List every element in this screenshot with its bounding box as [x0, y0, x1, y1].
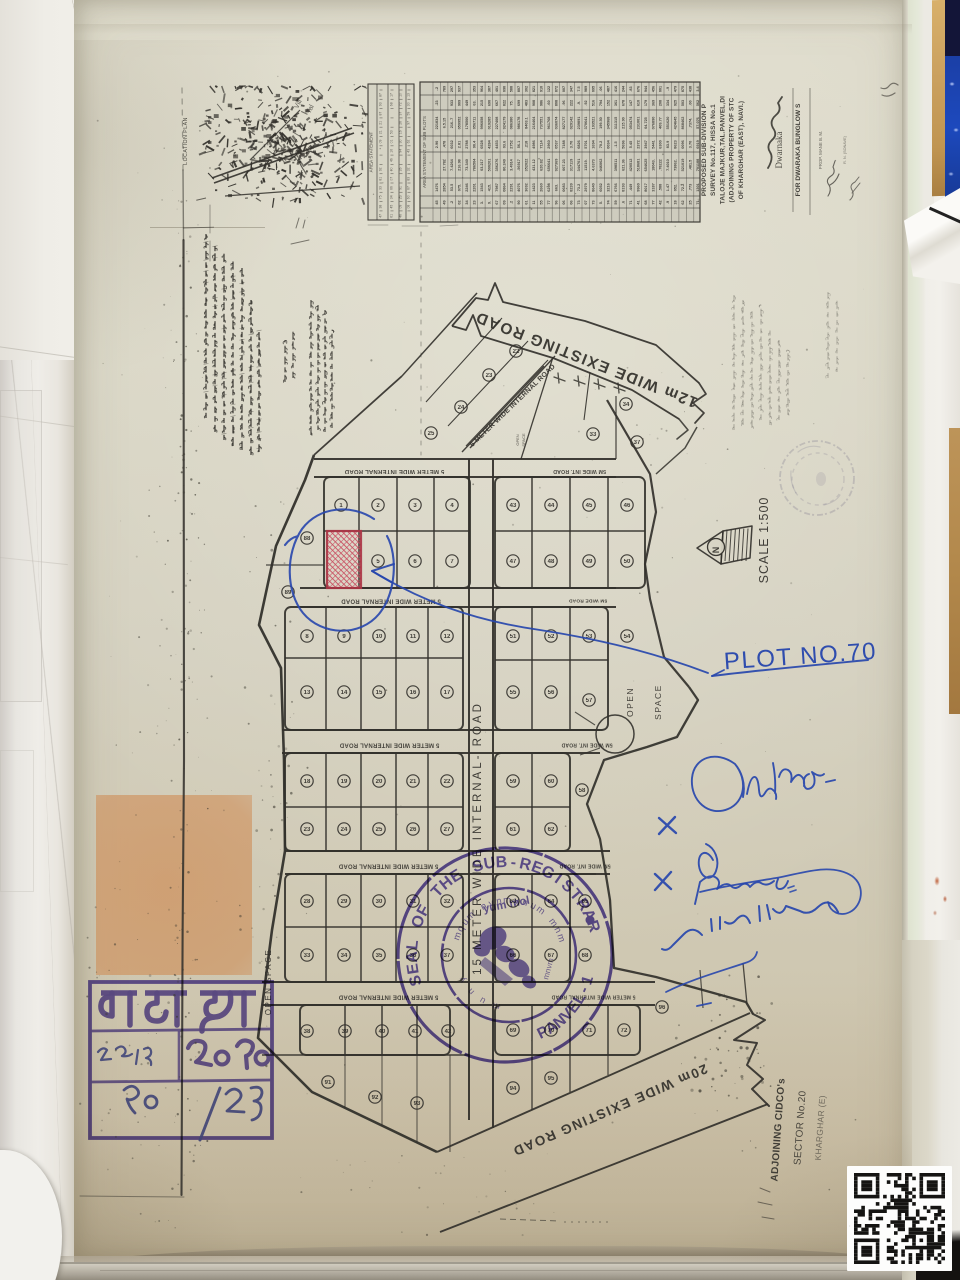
svg-text:14: 14	[341, 690, 348, 696]
svg-text:7.4264: 7.4264	[450, 158, 454, 171]
svg-text:0034: 0034	[607, 139, 611, 148]
svg-text:1: 1	[578, 973, 597, 987]
svg-text:0096: 0096	[681, 140, 685, 148]
svg-text:989: 989	[584, 86, 588, 92]
svg-text:431.12: 431.12	[532, 159, 536, 171]
svg-text:73862.: 73862.	[674, 159, 678, 171]
svg-text:2: 2	[376, 503, 380, 509]
svg-text:409.77: 409.77	[659, 117, 663, 129]
svg-text:095: 095	[592, 86, 596, 92]
svg-text:.588: .588	[659, 184, 663, 191]
svg-text:42: 42	[659, 200, 663, 204]
svg-text:15: 15	[376, 690, 383, 696]
svg-text:610: 610	[636, 100, 640, 106]
svg-text:57.076: 57.076	[696, 117, 700, 129]
svg-text:345968: 345968	[607, 117, 611, 130]
svg-text:60: 60	[548, 779, 555, 785]
svg-text:53.5: 53.5	[450, 184, 454, 191]
svg-text:95: 95	[548, 1076, 555, 1082]
svg-text:3947: 3947	[644, 140, 648, 148]
svg-text:019285: 019285	[487, 117, 491, 130]
svg-text:4: 4	[450, 503, 454, 509]
svg-text:87: 87	[379, 93, 383, 97]
svg-text:06: 06	[562, 200, 566, 204]
svg-text:7987: 7987	[495, 183, 499, 191]
svg-text:60: 60	[407, 195, 411, 199]
svg-text:13: 13	[407, 93, 411, 97]
svg-text:71: 71	[586, 1028, 593, 1034]
svg-text:2.81: 2.81	[458, 141, 462, 148]
svg-text:152: 152	[607, 100, 611, 106]
svg-text:m: m	[554, 933, 567, 944]
svg-text:69: 69	[510, 1028, 517, 1034]
svg-text:41: 41	[636, 200, 640, 204]
svg-text:13: 13	[304, 690, 311, 696]
svg-text:TALOJE MAJKUR,TAL.PANVEL,DI: TALOJE MAJKUR,TAL.PANVEL,DI	[719, 96, 726, 204]
svg-text:7.5: 7.5	[577, 86, 581, 91]
svg-text:26: 26	[410, 827, 417, 833]
svg-text:SURVEY No.117, HISSA No.1: SURVEY No.117, HISSA No.1	[710, 104, 717, 196]
svg-text:PROPOSED SUB-DIVISION P: PROPOSED SUB-DIVISION P	[701, 103, 708, 196]
svg-text:5: 5	[376, 559, 380, 565]
svg-text:2.90: 2.90	[435, 141, 439, 148]
svg-text:70.2: 70.2	[599, 141, 603, 148]
svg-text:28: 28	[304, 899, 311, 905]
svg-text:07: 07	[390, 177, 394, 181]
svg-text:398511: 398511	[614, 159, 618, 171]
svg-text:.449: .449	[629, 184, 633, 191]
svg-text:986: 986	[540, 100, 544, 106]
svg-text:SCALE 1:500: SCALE 1:500	[757, 497, 771, 584]
svg-text:SPACE: SPACE	[521, 433, 526, 447]
svg-text:87: 87	[379, 112, 383, 116]
svg-text:92: 92	[379, 167, 383, 171]
svg-text:518681: 518681	[636, 159, 640, 172]
svg-text:221834: 221834	[435, 116, 439, 130]
svg-text:438: 438	[689, 86, 693, 92]
svg-text:216464: 216464	[532, 116, 536, 130]
svg-text:46: 46	[399, 214, 403, 218]
svg-text:986178: 986178	[517, 117, 521, 130]
svg-text:7: 7	[450, 559, 454, 565]
svg-text:053474: 053474	[629, 116, 633, 130]
svg-text:7.4010: 7.4010	[666, 159, 670, 171]
svg-text:21: 21	[379, 121, 383, 125]
svg-text:23: 23	[304, 827, 311, 833]
svg-text:Dwarnaka: Dwarnaka	[774, 132, 784, 169]
svg-text:239891: 239891	[577, 117, 581, 130]
svg-text:93: 93	[379, 102, 383, 106]
svg-text:297: 297	[450, 86, 454, 92]
svg-text:875: 875	[681, 86, 685, 92]
svg-text:933: 933	[450, 100, 454, 106]
svg-text:3.70: 3.70	[569, 141, 573, 148]
svg-text:5.45: 5.45	[629, 141, 633, 148]
svg-text:KHARGHAR (E): KHARGHAR (E)	[813, 1095, 828, 1161]
svg-text:6298: 6298	[547, 183, 551, 191]
svg-text:U: U	[482, 854, 496, 873]
svg-text:33: 33	[379, 186, 383, 190]
svg-text:8640: 8640	[592, 183, 596, 191]
svg-text:.481.5: .481.5	[689, 160, 693, 171]
svg-text:3692: 3692	[525, 183, 529, 191]
svg-text:4076: 4076	[517, 183, 521, 191]
svg-text:11: 11	[532, 200, 536, 204]
svg-text:04.725: 04.725	[644, 117, 648, 129]
svg-text:81: 81	[379, 177, 383, 181]
svg-text:38: 38	[304, 1029, 311, 1035]
svg-text:16: 16	[410, 690, 417, 696]
svg-text:6: 6	[413, 559, 417, 565]
svg-text:2246: 2246	[465, 183, 469, 191]
svg-text:20: 20	[376, 779, 383, 785]
svg-text:51: 51	[510, 634, 517, 640]
svg-text:17: 17	[390, 93, 394, 97]
svg-text:10: 10	[376, 634, 383, 640]
svg-text:1: 1	[339, 503, 343, 509]
svg-text:.773: .773	[689, 184, 693, 191]
svg-text:5 METER WIDE INTERNAL ROAD: 5 METER WIDE INTERNAL ROAD	[339, 742, 439, 748]
svg-text:34: 34	[341, 953, 348, 959]
svg-text:7114: 7114	[540, 139, 544, 148]
svg-text:456: 456	[651, 86, 655, 92]
svg-text:30: 30	[407, 102, 411, 106]
svg-text:10: 10	[399, 93, 403, 97]
svg-text:5 METER WIDE INTERNAL ROAD: 5 METER WIDE INTERNAL ROAD	[338, 863, 438, 869]
svg-text:21: 21	[379, 130, 383, 134]
svg-text:5.: 5.	[599, 201, 603, 204]
svg-text:26: 26	[399, 167, 403, 171]
svg-text:352022: 352022	[525, 159, 529, 172]
svg-text:2788: 2788	[465, 140, 469, 148]
svg-text:9960: 9960	[636, 183, 640, 191]
svg-text:09: 09	[502, 200, 506, 204]
svg-text:6052: 6052	[599, 183, 603, 191]
svg-text:086380: 086380	[510, 117, 514, 130]
svg-text:37: 37	[444, 953, 451, 959]
svg-text:27.782: 27.782	[443, 159, 447, 171]
svg-text:42: 42	[445, 1029, 452, 1035]
svg-text:3.4914: 3.4914	[510, 158, 514, 171]
svg-text:3.70: 3.70	[689, 141, 693, 148]
svg-text:30: 30	[399, 140, 403, 144]
svg-text:73: 73	[592, 200, 596, 204]
svg-text:03.6: 03.6	[502, 141, 506, 148]
svg-text:347: 347	[569, 86, 573, 92]
svg-text:PROP. MANE B. M.: PROP. MANE B. M.	[818, 131, 823, 169]
svg-text:18: 18	[304, 779, 311, 785]
svg-text:71: 71	[696, 200, 700, 204]
svg-text:690: 690	[487, 100, 491, 106]
svg-text:2854: 2854	[443, 182, 447, 191]
svg-text:35: 35	[376, 953, 383, 959]
svg-text:OPEN: OPEN	[625, 687, 635, 717]
svg-text:02: 02	[458, 200, 462, 204]
svg-text:699: 699	[517, 100, 521, 106]
svg-text:SECTOR No.20: SECTOR No.20	[792, 1090, 808, 1165]
svg-text:33: 33	[304, 953, 311, 959]
svg-text:90: 90	[517, 200, 521, 204]
svg-text:97: 97	[407, 121, 411, 125]
svg-text:588: 588	[510, 86, 514, 92]
svg-text:77: 77	[547, 200, 551, 204]
svg-text:..2: ..2	[435, 87, 439, 91]
svg-text:44: 44	[548, 503, 555, 509]
svg-text:2660: 2660	[540, 183, 544, 191]
svg-text:964: 964	[480, 85, 484, 92]
svg-text:(ADJOINING PROPERTY OF STC: (ADJOINING PROPERTY OF STC	[729, 97, 736, 202]
svg-text:16: 16	[399, 130, 403, 134]
svg-text:500201: 500201	[487, 159, 491, 172]
svg-text:18043.: 18043.	[651, 159, 655, 171]
svg-text:83.9: 83.9	[666, 141, 670, 148]
svg-text:47: 47	[510, 559, 517, 565]
svg-text:908: 908	[532, 100, 536, 106]
svg-text:93: 93	[414, 1101, 421, 1107]
svg-text:562: 562	[696, 100, 700, 106]
svg-text:R. N. (SONAVE): R. N. (SONAVE)	[843, 135, 847, 164]
svg-text:56.1: 56.1	[517, 141, 521, 148]
svg-text:17: 17	[444, 690, 451, 696]
svg-text:A: A	[404, 950, 421, 962]
svg-text:01: 01	[390, 140, 394, 144]
svg-text:E: E	[404, 962, 422, 975]
svg-text:40: 40	[379, 1029, 386, 1035]
svg-text:.92: .92	[584, 100, 588, 105]
svg-text:75.: 75.	[510, 100, 514, 105]
svg-text:L: L	[404, 939, 422, 951]
svg-text:937: 937	[458, 86, 462, 92]
svg-text:07: 07	[584, 200, 588, 204]
svg-text:663.: 663.	[554, 184, 558, 191]
svg-text:.7374.: .7374.	[689, 118, 693, 129]
svg-text:8403.1: 8403.1	[525, 117, 529, 129]
svg-text:67: 67	[495, 200, 499, 204]
svg-text:620.82: 620.82	[540, 159, 544, 171]
svg-text:32: 32	[444, 899, 451, 905]
svg-text:334: 334	[666, 99, 670, 106]
svg-text:37: 37	[634, 440, 641, 446]
svg-text:3.4: 3.4	[696, 85, 700, 91]
svg-text:75: 75	[379, 195, 383, 199]
svg-text:.218: .218	[525, 141, 529, 148]
svg-text:6300: 6300	[659, 140, 663, 148]
svg-text:909: 909	[458, 100, 462, 106]
svg-text:656641: 656641	[547, 159, 551, 172]
svg-text:090: 090	[502, 86, 506, 92]
svg-text:420512: 420512	[629, 159, 633, 172]
svg-text:7188: 7188	[562, 140, 566, 148]
svg-text:424645: 424645	[674, 117, 678, 130]
svg-text:479: 479	[674, 86, 678, 92]
svg-text:AREA STATEMENT OF SUB PLOTS: AREA STATEMENT OF SUB PLOTS	[422, 116, 427, 188]
svg-text:3187: 3187	[651, 183, 655, 191]
svg-text:90.4: 90.4	[472, 140, 476, 148]
svg-text:208: 208	[659, 100, 663, 106]
svg-text:.60: .60	[547, 100, 551, 105]
svg-text:54: 54	[624, 634, 631, 640]
svg-text:45: 45	[586, 503, 593, 509]
svg-text:OPEN: OPEN	[515, 434, 520, 445]
svg-text:4284: 4284	[487, 139, 491, 148]
svg-text:11519.: 11519.	[584, 159, 588, 170]
svg-text:.83: .83	[629, 86, 633, 91]
svg-text:12: 12	[444, 634, 451, 640]
svg-text:302: 302	[525, 86, 529, 92]
svg-text:68: 68	[644, 200, 648, 204]
svg-text:34: 34	[623, 402, 630, 408]
svg-text:1.47: 1.47	[666, 184, 670, 191]
svg-text:19: 19	[341, 779, 348, 785]
svg-text:178500: 178500	[465, 117, 469, 130]
svg-text:77: 77	[651, 200, 655, 204]
svg-text:73.2: 73.2	[577, 184, 581, 191]
svg-text:PLOT NO.70: PLOT NO.70	[723, 638, 878, 676]
svg-text:24: 24	[458, 405, 465, 411]
svg-text:029142: 029142	[569, 117, 573, 130]
svg-text:25: 25	[376, 827, 383, 833]
svg-text:927369: 927369	[554, 159, 558, 172]
svg-text:369: 369	[651, 100, 655, 106]
svg-text:924179: 924179	[502, 117, 506, 130]
svg-text:4.6373: 4.6373	[592, 159, 596, 171]
svg-text:8017: 8017	[644, 183, 648, 191]
svg-text:361: 361	[614, 100, 618, 106]
svg-text:416: 416	[614, 86, 618, 92]
svg-text:34: 34	[390, 195, 394, 199]
svg-text:39: 39	[342, 1029, 349, 1035]
svg-text:5 METER WIDE INTERNAL ROAD: 5 METER WIDE INTERNAL ROAD	[344, 468, 444, 474]
svg-text:55: 55	[540, 200, 544, 204]
svg-text:.00: .00	[689, 100, 693, 105]
svg-text:LOCATION PLAN: LOCATION PLAN	[183, 117, 189, 165]
svg-text:91: 91	[325, 1080, 332, 1086]
svg-text:8193: 8193	[621, 183, 625, 191]
svg-text:50: 50	[624, 559, 631, 565]
svg-text:6766: 6766	[614, 183, 618, 191]
svg-text:821: 821	[532, 86, 536, 92]
svg-text:503: 503	[681, 100, 685, 106]
svg-text:4986: 4986	[532, 140, 536, 148]
svg-text:.1.5: .1.5	[614, 141, 618, 147]
svg-text:59: 59	[510, 779, 517, 785]
svg-text:96: 96	[659, 1005, 666, 1011]
svg-text:52: 52	[548, 634, 555, 640]
svg-text:26: 26	[399, 121, 403, 125]
svg-text:036074: 036074	[554, 116, 558, 130]
svg-text:09: 09	[379, 140, 383, 144]
svg-text:827177: 827177	[562, 117, 566, 130]
svg-text:678: 678	[621, 100, 625, 106]
svg-text:317119: 317119	[569, 159, 573, 171]
svg-text:58: 58	[579, 788, 586, 794]
svg-text:2752: 2752	[510, 140, 514, 148]
svg-text:6826: 6826	[577, 140, 581, 148]
svg-text:61: 61	[525, 200, 529, 204]
svg-text:08: 08	[407, 205, 411, 209]
svg-text:807: 807	[517, 86, 521, 92]
svg-text:387: 387	[487, 86, 491, 92]
svg-text:0537: 0537	[554, 140, 558, 148]
svg-text:231001: 231001	[636, 117, 640, 130]
svg-text:91: 91	[399, 186, 403, 190]
svg-text:356276: 356276	[495, 159, 499, 172]
svg-text:0683: 0683	[562, 183, 566, 191]
svg-text:487: 487	[607, 86, 611, 92]
svg-text:71: 71	[629, 200, 633, 204]
svg-text:ADJOINING CIDCO's: ADJOINING CIDCO's	[769, 1078, 787, 1182]
svg-text:076890: 076890	[651, 117, 655, 130]
svg-text:001: 001	[659, 86, 663, 92]
svg-text:Tal: Tal	[306, 103, 316, 114]
svg-text:8239: 8239	[569, 183, 573, 191]
svg-text:62: 62	[681, 200, 685, 204]
svg-text:96: 96	[554, 200, 558, 204]
svg-text:68: 68	[390, 102, 394, 106]
svg-text:.78222: .78222	[659, 159, 663, 171]
svg-text:68: 68	[582, 953, 589, 959]
svg-text:66: 66	[390, 186, 394, 190]
svg-text:45: 45	[390, 205, 394, 209]
svg-text:29: 29	[341, 899, 348, 905]
svg-text:62: 62	[548, 827, 555, 833]
svg-text:16: 16	[390, 149, 394, 153]
svg-text:8623: 8623	[674, 140, 678, 148]
svg-text:872: 872	[554, 86, 558, 92]
svg-text:2291: 2291	[510, 183, 514, 191]
svg-text:046062: 046062	[599, 159, 603, 172]
svg-text:215: 215	[480, 100, 484, 106]
svg-text:AREA STATEMENT: AREA STATEMENT	[369, 131, 374, 172]
svg-text:.06: .06	[599, 86, 603, 91]
svg-text:3: 3	[413, 503, 417, 509]
svg-text:B: B	[495, 854, 507, 871]
svg-text:25: 25	[689, 200, 693, 204]
svg-text:SPACE: SPACE	[653, 684, 663, 720]
svg-text:FOR DWARAKA BUNGLOW S: FOR DWARAKA BUNGLOW S	[795, 103, 802, 196]
svg-text:222: 222	[569, 100, 573, 106]
svg-text:83: 83	[407, 177, 411, 181]
svg-text:216.98: 216.98	[458, 159, 462, 171]
svg-text:311315: 311315	[614, 117, 618, 129]
svg-text:075.: 075.	[458, 184, 462, 191]
svg-text:6 METER WIDE INTERNAL ROAD: 6 METER WIDE INTERNAL ROAD	[469, 363, 557, 448]
svg-text:1476: 1476	[435, 183, 439, 191]
svg-text:32: 32	[407, 167, 411, 171]
svg-text:179: 179	[644, 100, 648, 106]
svg-text:.9: .9	[666, 201, 670, 204]
svg-text:215.90: 215.90	[621, 117, 625, 129]
svg-text:786504: 786504	[472, 158, 476, 172]
svg-text:46: 46	[390, 158, 394, 162]
svg-text:.478: .478	[443, 141, 447, 148]
svg-text:61: 61	[390, 214, 394, 218]
svg-text:244: 244	[621, 85, 625, 92]
svg-text:8: 8	[305, 634, 309, 640]
svg-text:401: 401	[495, 86, 499, 92]
svg-text:49: 49	[586, 559, 593, 565]
svg-text:46: 46	[624, 503, 631, 509]
svg-text:.2: .2	[510, 201, 514, 204]
svg-text:12m WIDE EXISTING ROAD: 12m WIDE EXISTING ROAD	[473, 308, 700, 411]
svg-text:5441: 5441	[651, 140, 655, 148]
svg-text:38: 38	[379, 205, 383, 209]
svg-text:55: 55	[510, 690, 517, 696]
svg-text:.2: .2	[450, 201, 454, 204]
svg-text:94: 94	[399, 149, 403, 153]
svg-text:03.217: 03.217	[480, 159, 484, 171]
svg-text:06: 06	[569, 200, 573, 204]
